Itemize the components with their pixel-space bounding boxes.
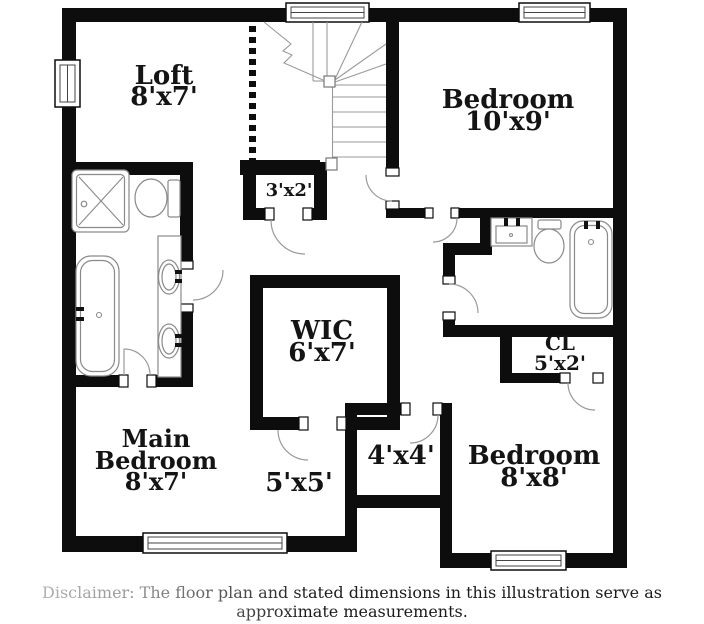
- door-arc-hall-closet: [271, 220, 305, 254]
- window-top-stairs: [286, 3, 369, 22]
- room-dims-loft: 8'x7': [130, 82, 198, 112]
- door-arc-bedroom2: [568, 383, 595, 410]
- toilet-master-icon: [135, 179, 180, 217]
- window-bedroom2: [491, 551, 566, 570]
- toilet-hall-icon: [534, 220, 564, 263]
- window-main-bedroom: [143, 533, 287, 553]
- master-bath-fixtures: [72, 170, 182, 377]
- shower-icon: [72, 170, 129, 232]
- staircase: [264, 22, 386, 170]
- stair-newel-top: [324, 76, 335, 87]
- door-arc-4x4: [410, 415, 438, 443]
- room-dims-5x5: 5'x5': [265, 468, 333, 498]
- room-dims-hall-closet: 3'x2': [266, 180, 313, 201]
- room-dims-wic: 6'x7': [288, 338, 356, 368]
- floor-plan-page: Loft 8'x7' Bedroom 10'x9' 3'x2' WIC 6'x7…: [0, 0, 704, 624]
- disclaimer-text: Disclaimer: The floor plan and stated di…: [0, 583, 704, 624]
- door-arc-wic: [278, 430, 308, 460]
- room-dims-bedroom2: 8'x8': [500, 463, 568, 493]
- floor-plan-drawing: Loft 8'x7' Bedroom 10'x9' 3'x2' WIC 6'x7…: [0, 0, 704, 578]
- door-arc-master-bath-hall: [193, 270, 223, 300]
- hall-bath-fixtures: [491, 218, 612, 318]
- room-dims-4x4: 4'x4': [367, 441, 435, 471]
- window-left: [55, 60, 80, 107]
- disclaimer-line-1: Disclaimer: The floor plan and stated di…: [0, 583, 704, 621]
- sink-icon: [491, 218, 532, 246]
- door-arc-master-bath: [124, 349, 150, 375]
- stair-break-line: [264, 22, 323, 80]
- bathtub-hall-icon: [570, 221, 612, 318]
- stair-newel-bottom: [326, 158, 337, 170]
- room-dims-bedroom1: 10'x9': [465, 107, 551, 137]
- window-top-bedroom1: [519, 3, 590, 22]
- room-dims-cl: 5'x2': [534, 351, 586, 375]
- bathtub-master-icon: [76, 256, 119, 376]
- room-dims-main-bedroom: 8'x7': [125, 467, 187, 496]
- double-vanity-icon: [158, 236, 182, 377]
- door-arc-linen: [433, 218, 457, 242]
